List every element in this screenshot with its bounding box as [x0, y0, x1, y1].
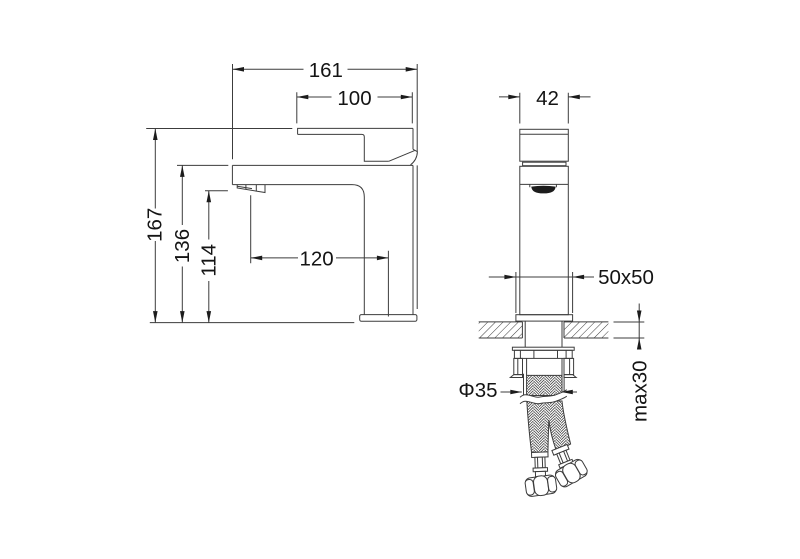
svg-text:50x50: 50x50 — [598, 266, 654, 289]
svg-text:136: 136 — [171, 229, 194, 263]
svg-text:167: 167 — [143, 208, 166, 242]
svg-text:Φ35: Φ35 — [458, 379, 497, 402]
svg-text:120: 120 — [299, 248, 333, 271]
svg-text:100: 100 — [337, 87, 371, 110]
svg-text:114: 114 — [197, 244, 220, 277]
svg-text:max30: max30 — [629, 360, 652, 422]
svg-text:42: 42 — [536, 87, 559, 110]
svg-text:161: 161 — [309, 59, 343, 82]
